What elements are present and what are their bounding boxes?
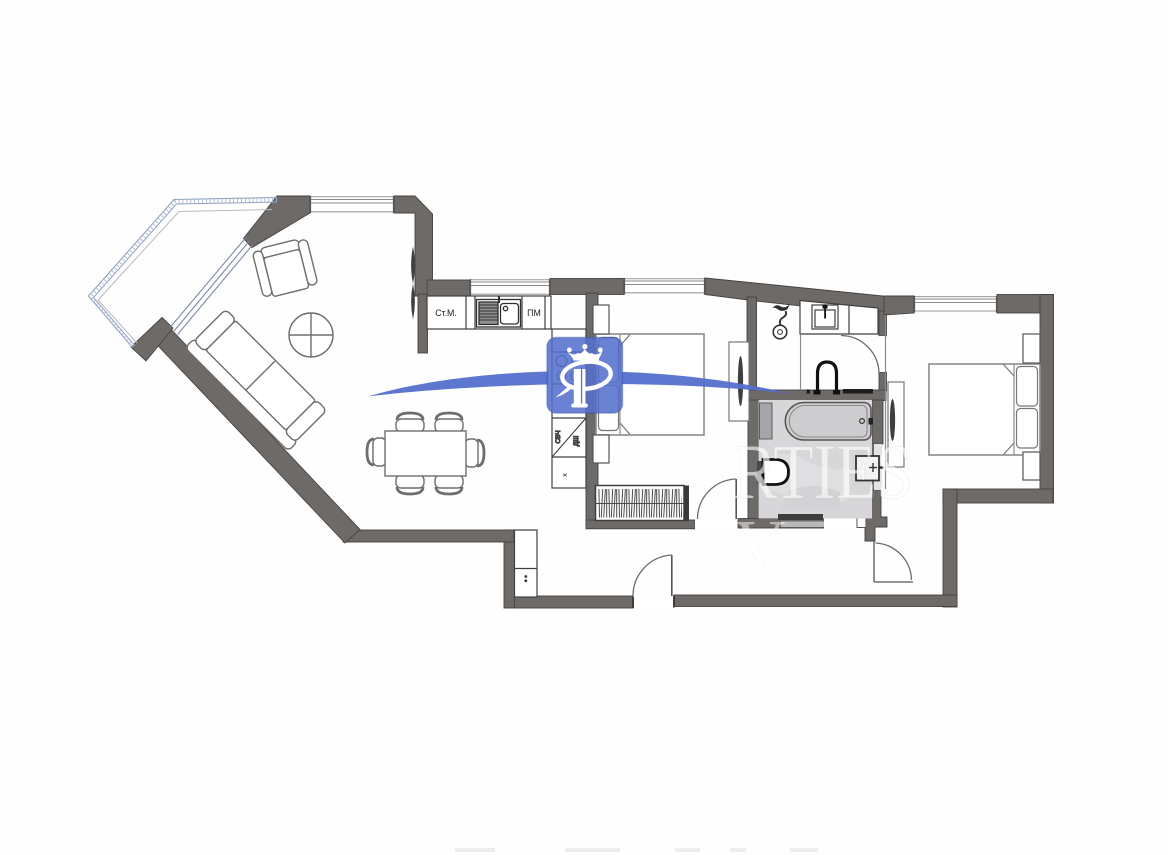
svg-text:V: V <box>735 507 786 584</box>
svg-text:x: x <box>560 473 569 477</box>
svg-text:ПМ: ПМ <box>527 308 541 318</box>
svg-text:Ст.М.: Ст.М. <box>435 308 457 318</box>
svg-text:RTIES: RTIES <box>733 428 913 515</box>
svg-text:СВЧ: СВЧ <box>555 430 562 443</box>
svg-text:ДШ: ДШ <box>573 436 580 446</box>
